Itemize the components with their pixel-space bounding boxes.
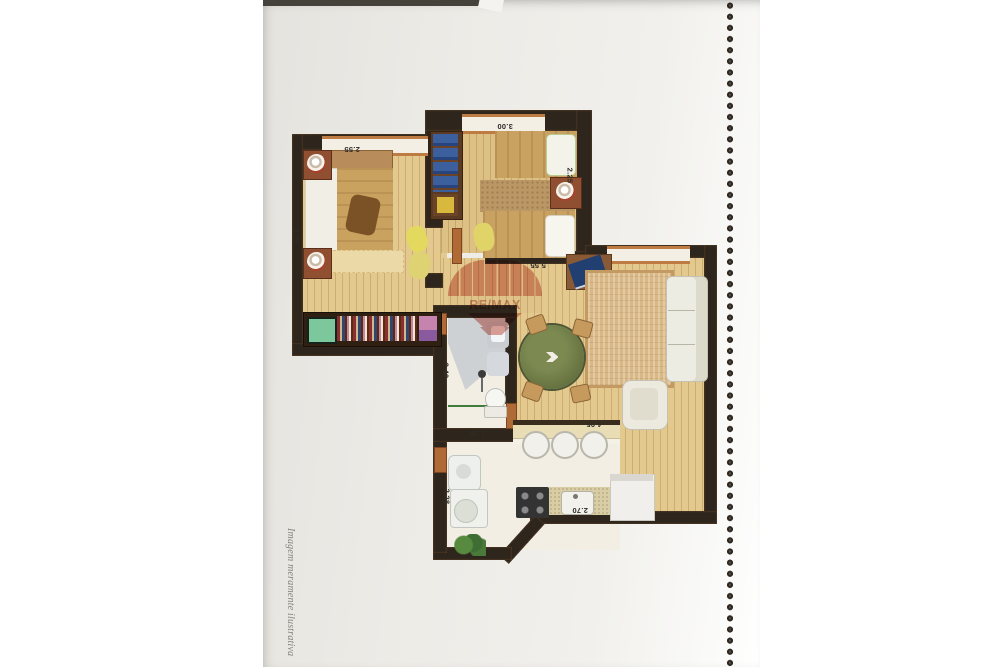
laundry-tub-basin — [456, 464, 471, 479]
fridge — [610, 474, 655, 521]
balloon-basket-icon — [480, 327, 510, 335]
dimension-label: 5.55 — [522, 261, 554, 270]
shower-drain-icon — [478, 370, 486, 378]
wardrobe-shelves — [433, 134, 458, 192]
scanned-floorplan-page: RE/MAX 2.55 3.00 4.05 2.25 5.55 2.40 1.2… — [0, 0, 1000, 667]
dimension-label: 2.40 — [442, 358, 451, 384]
stove — [516, 487, 549, 518]
spiral-binding-holes — [720, 0, 740, 667]
faucet-icon — [573, 494, 578, 499]
sofa-cushion-seam — [668, 310, 695, 311]
wash-basin-drum — [454, 499, 478, 523]
dimension-label: 2.70 — [564, 506, 596, 515]
dimension-label: 2.55 — [336, 145, 368, 154]
armchair-seat — [630, 388, 658, 420]
bar-stool — [551, 431, 579, 459]
shower-curtain-line — [448, 405, 488, 407]
dimension-label: 2.25 — [566, 163, 575, 189]
dimension-label: 3.00 — [489, 122, 521, 131]
sofa — [666, 276, 708, 382]
bedroom1-rug — [328, 250, 404, 273]
shower-hose — [481, 378, 483, 392]
bath-fixture — [487, 352, 509, 376]
remax-watermark: RE/MAX — [443, 258, 547, 342]
storage-box — [437, 197, 454, 213]
toilet-tank — [484, 406, 507, 418]
living-rug — [585, 270, 674, 388]
balloon-bottom-icon — [468, 313, 522, 327]
bed2b-pillow — [545, 215, 575, 257]
plant-icon — [454, 534, 486, 556]
bookshelf-books — [337, 316, 417, 341]
dimension-label: 4.05 — [578, 420, 610, 429]
lamp-icon — [307, 252, 326, 271]
door-service — [434, 447, 447, 473]
scan-edge-shadow — [263, 0, 501, 6]
dimension-label: 2.28 — [443, 484, 452, 510]
watermark-brand-text: RE/MAX — [448, 296, 542, 313]
page-caption: Imagem meramente ilustrativa — [285, 528, 296, 656]
fridge-top — [610, 474, 653, 481]
dimension-label: 4.05 — [292, 224, 301, 250]
lamp-icon — [307, 154, 326, 173]
dimension-label: 1.20 — [461, 429, 493, 438]
bar-stool — [580, 431, 608, 459]
window-living — [607, 246, 690, 264]
wall-door-jamb — [425, 273, 443, 288]
sofa-cushion-seam — [668, 344, 695, 345]
bar-stool — [522, 431, 550, 459]
bookshelf-boxes — [419, 316, 437, 341]
tv-icon — [307, 317, 337, 344]
bed1-sheet — [305, 168, 341, 258]
